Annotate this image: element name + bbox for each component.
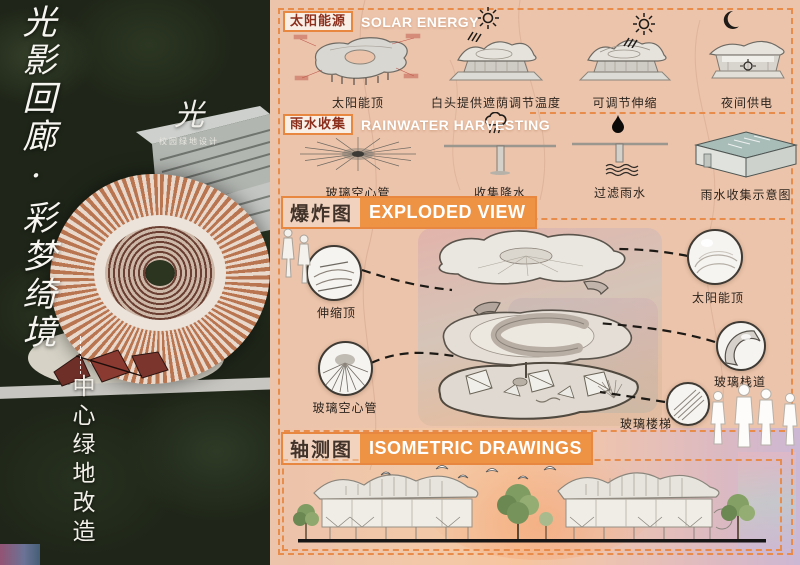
rain-section-title: RAINWATER HARVESTING: [361, 117, 550, 133]
isometric-drawings: [286, 461, 778, 549]
rain-section-header: 雨水收集 RAINWATER HARVESTING: [283, 114, 550, 135]
collect-rain-diagram: [438, 130, 562, 178]
sun-icon: [476, 6, 500, 30]
filter-rain-diagram: [558, 130, 682, 178]
logo-subtitle: 校园绿地设计: [146, 136, 232, 147]
sun-icon: [632, 12, 656, 36]
rain-section-tag: 雨水收集: [283, 114, 353, 135]
callout-solar-roof: [687, 229, 743, 285]
photo-corner-detail: [0, 544, 40, 565]
sun-ray-marks: [622, 34, 638, 48]
logo-mark: 光: [146, 90, 232, 134]
divider-solar: [530, 112, 785, 114]
callout-label: 太阳能顶: [678, 289, 758, 306]
moon-icon: [718, 8, 742, 32]
isometric-section-tag: 轴测图: [283, 434, 360, 463]
solar-figure-2: 白头提供遮荫调节温度: [430, 28, 562, 111]
solar-figure-1: 太阳能顶: [292, 30, 424, 111]
glass-walkway-detail: [718, 323, 764, 369]
isometric-section-title: ISOMETRIC DRAWINGS: [360, 434, 591, 463]
solar-roof-detail: [689, 231, 741, 283]
solar-section-tag: 太阳能源: [283, 11, 353, 32]
exploded-axonometric-drawing: [408, 224, 672, 428]
canopy-inner-ring: [94, 215, 226, 331]
night-power-diagram: [686, 26, 800, 88]
figure-caption: 夜间供电: [686, 94, 800, 111]
figure-caption: 过滤雨水: [558, 184, 682, 201]
canopy-shade-diagram: [430, 28, 562, 88]
droplet-icon: [611, 114, 625, 133]
callout-label: 伸缩顶: [284, 304, 389, 321]
exploded-section-tag: 爆炸图: [283, 198, 360, 227]
rain-figure-4: 雨水收集示意图: [684, 128, 800, 203]
rain-collection-box-diagram: [684, 128, 800, 180]
vertical-dashed-line: [80, 336, 81, 374]
figure-caption: 太阳能顶: [292, 94, 424, 111]
rain-figure-3: 过滤雨水: [558, 130, 682, 201]
solar-section-title: SOLAR ENERGY: [361, 14, 479, 30]
callout-glass-tube: [318, 341, 373, 396]
callout-label: 玻璃楼梯: [606, 415, 686, 432]
solar-figure-4: 夜间供电: [686, 26, 800, 111]
studio-logo: 光 校园绿地设计: [146, 90, 232, 147]
figure-caption: 雨水收集示意图: [684, 186, 800, 203]
figure-caption: 白头提供遮荫调节温度: [430, 94, 562, 111]
callout-label: 玻璃空心管: [290, 399, 400, 416]
exploded-section-title: EXPLODED VIEW: [360, 198, 535, 227]
people-silhouettes-left: [274, 225, 318, 295]
canopy-top-view-diagram: [292, 30, 424, 88]
callout-glass-walkway: [716, 321, 766, 371]
isometric-section-header: 轴测图ISOMETRIC DRAWINGS: [281, 432, 593, 465]
figure-caption: 可调节伸缩: [566, 94, 684, 111]
presentation-board: 光影回廊·彩梦绮境 中心绿地改造 光 校园绿地设计 太阳能源 SOLAR ENE: [0, 0, 800, 565]
poster-subtitle: 中心绿地改造: [64, 374, 98, 548]
poster-title: 光影回廊·彩梦绮境: [12, 4, 61, 352]
rain-figure-2: 收集降水: [438, 130, 562, 201]
exploded-section-header: 爆炸图EXPLODED VIEW: [281, 196, 537, 229]
canopy-center: [145, 260, 175, 286]
diagram-panel: 太阳能源 SOLAR ENERGY: [270, 0, 800, 565]
solar-section-header: 太阳能源 SOLAR ENERGY: [283, 11, 479, 32]
hero-photo-panel: 光影回廊·彩梦绮境 中心绿地改造 光 校园绿地设计: [0, 0, 270, 565]
radial-glass-tube-diagram: [292, 130, 424, 178]
rain-figure-1: 玻璃空心管: [292, 130, 424, 201]
people-silhouettes-right: [706, 382, 798, 448]
glass-tube-detail: [320, 343, 371, 394]
